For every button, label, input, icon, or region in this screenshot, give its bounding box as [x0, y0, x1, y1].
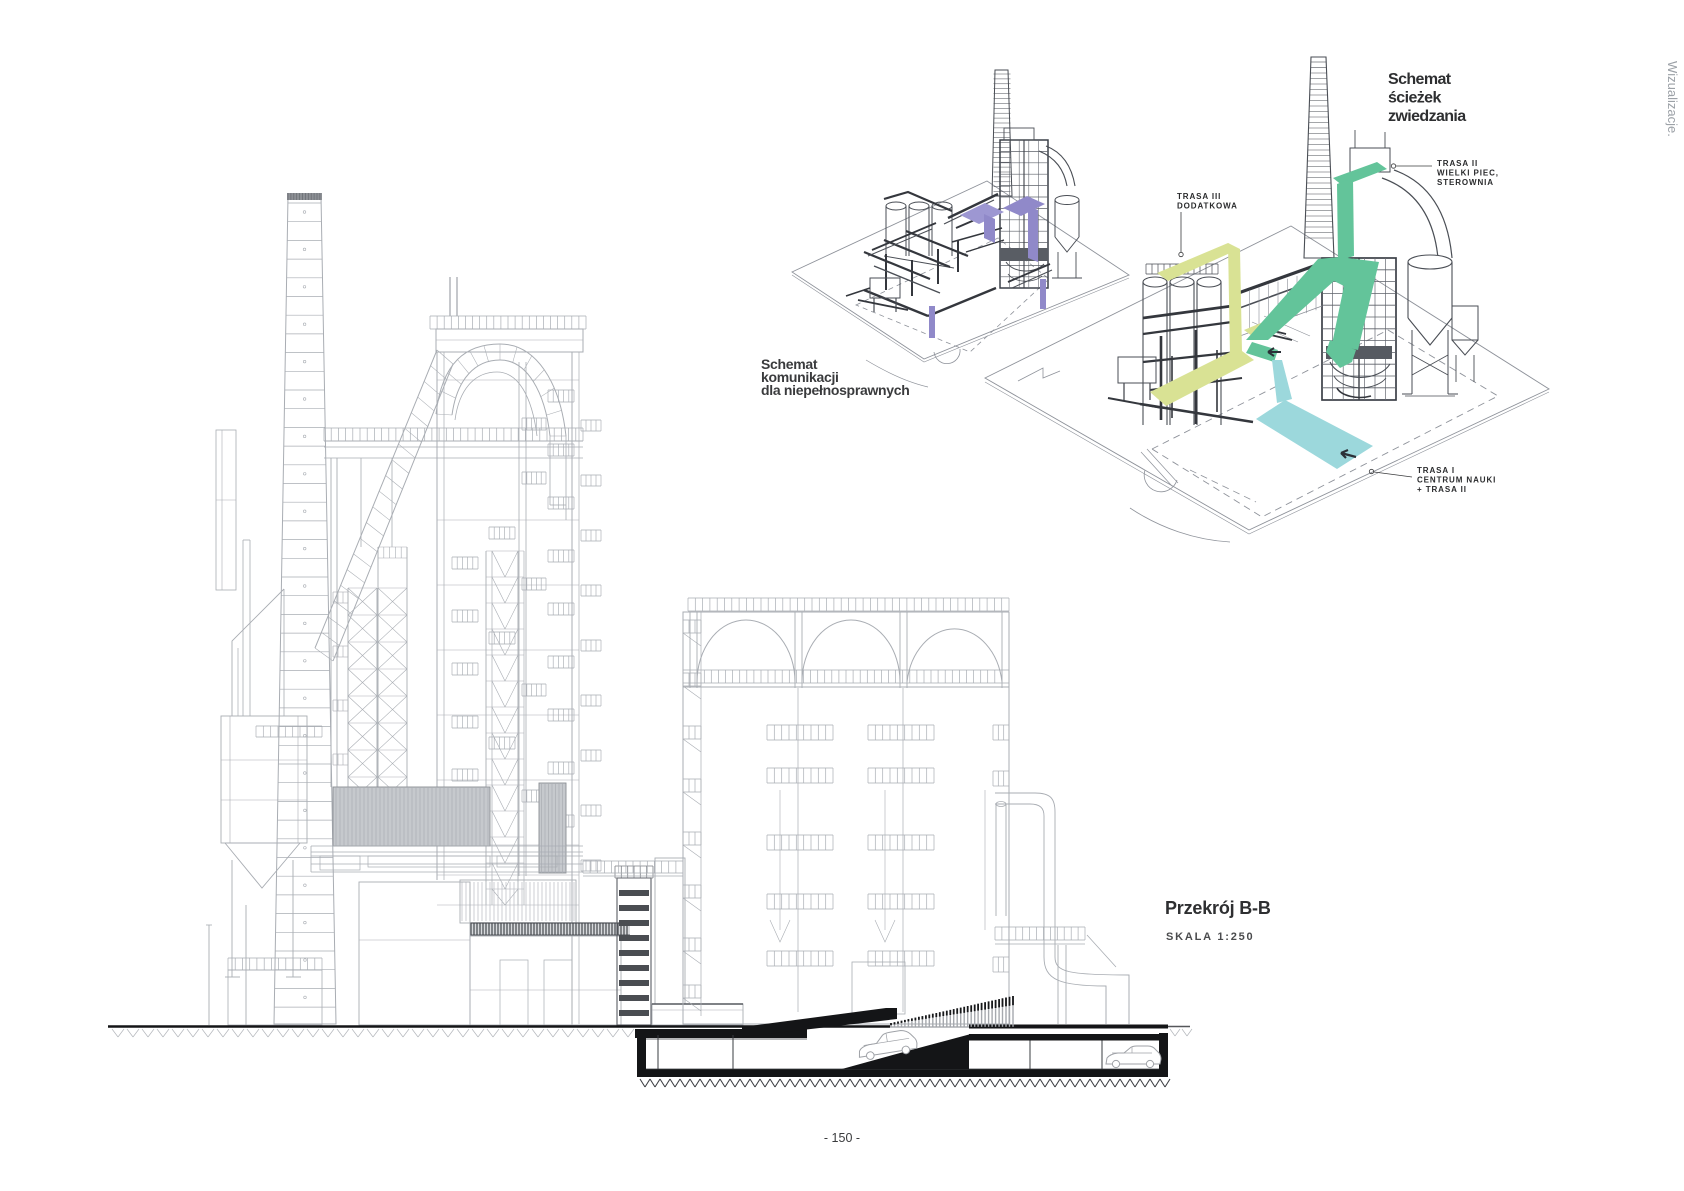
svg-text:SKALA 1:250: SKALA 1:250 [1166, 931, 1254, 943]
svg-text:ścieżek: ścieżek [1388, 90, 1441, 107]
svg-text:zwiedzania: zwiedzania [1388, 108, 1466, 125]
svg-text:WIELKI PIEC,: WIELKI PIEC, [1437, 169, 1499, 178]
svg-text:dla niepełnosprawnych: dla niepełnosprawnych [761, 382, 910, 398]
svg-text:Schemat: Schemat [1388, 71, 1452, 88]
svg-text:TRASA III: TRASA III [1177, 192, 1221, 201]
svg-text:STEROWNIA: STEROWNIA [1437, 178, 1494, 187]
svg-text:+ TRASA II: + TRASA II [1417, 485, 1467, 494]
svg-text:- 150 -: - 150 - [824, 1131, 860, 1145]
svg-text:TRASA I: TRASA I [1417, 466, 1455, 475]
svg-text:DODATKOWA: DODATKOWA [1177, 202, 1238, 211]
svg-text:CENTRUM NAUKI: CENTRUM NAUKI [1417, 476, 1496, 485]
svg-text:Wizualizacje.: Wizualizacje. [1665, 61, 1680, 137]
svg-text:Przekrój B-B: Przekrój B-B [1165, 898, 1271, 918]
svg-text:TRASA II: TRASA II [1437, 159, 1478, 168]
